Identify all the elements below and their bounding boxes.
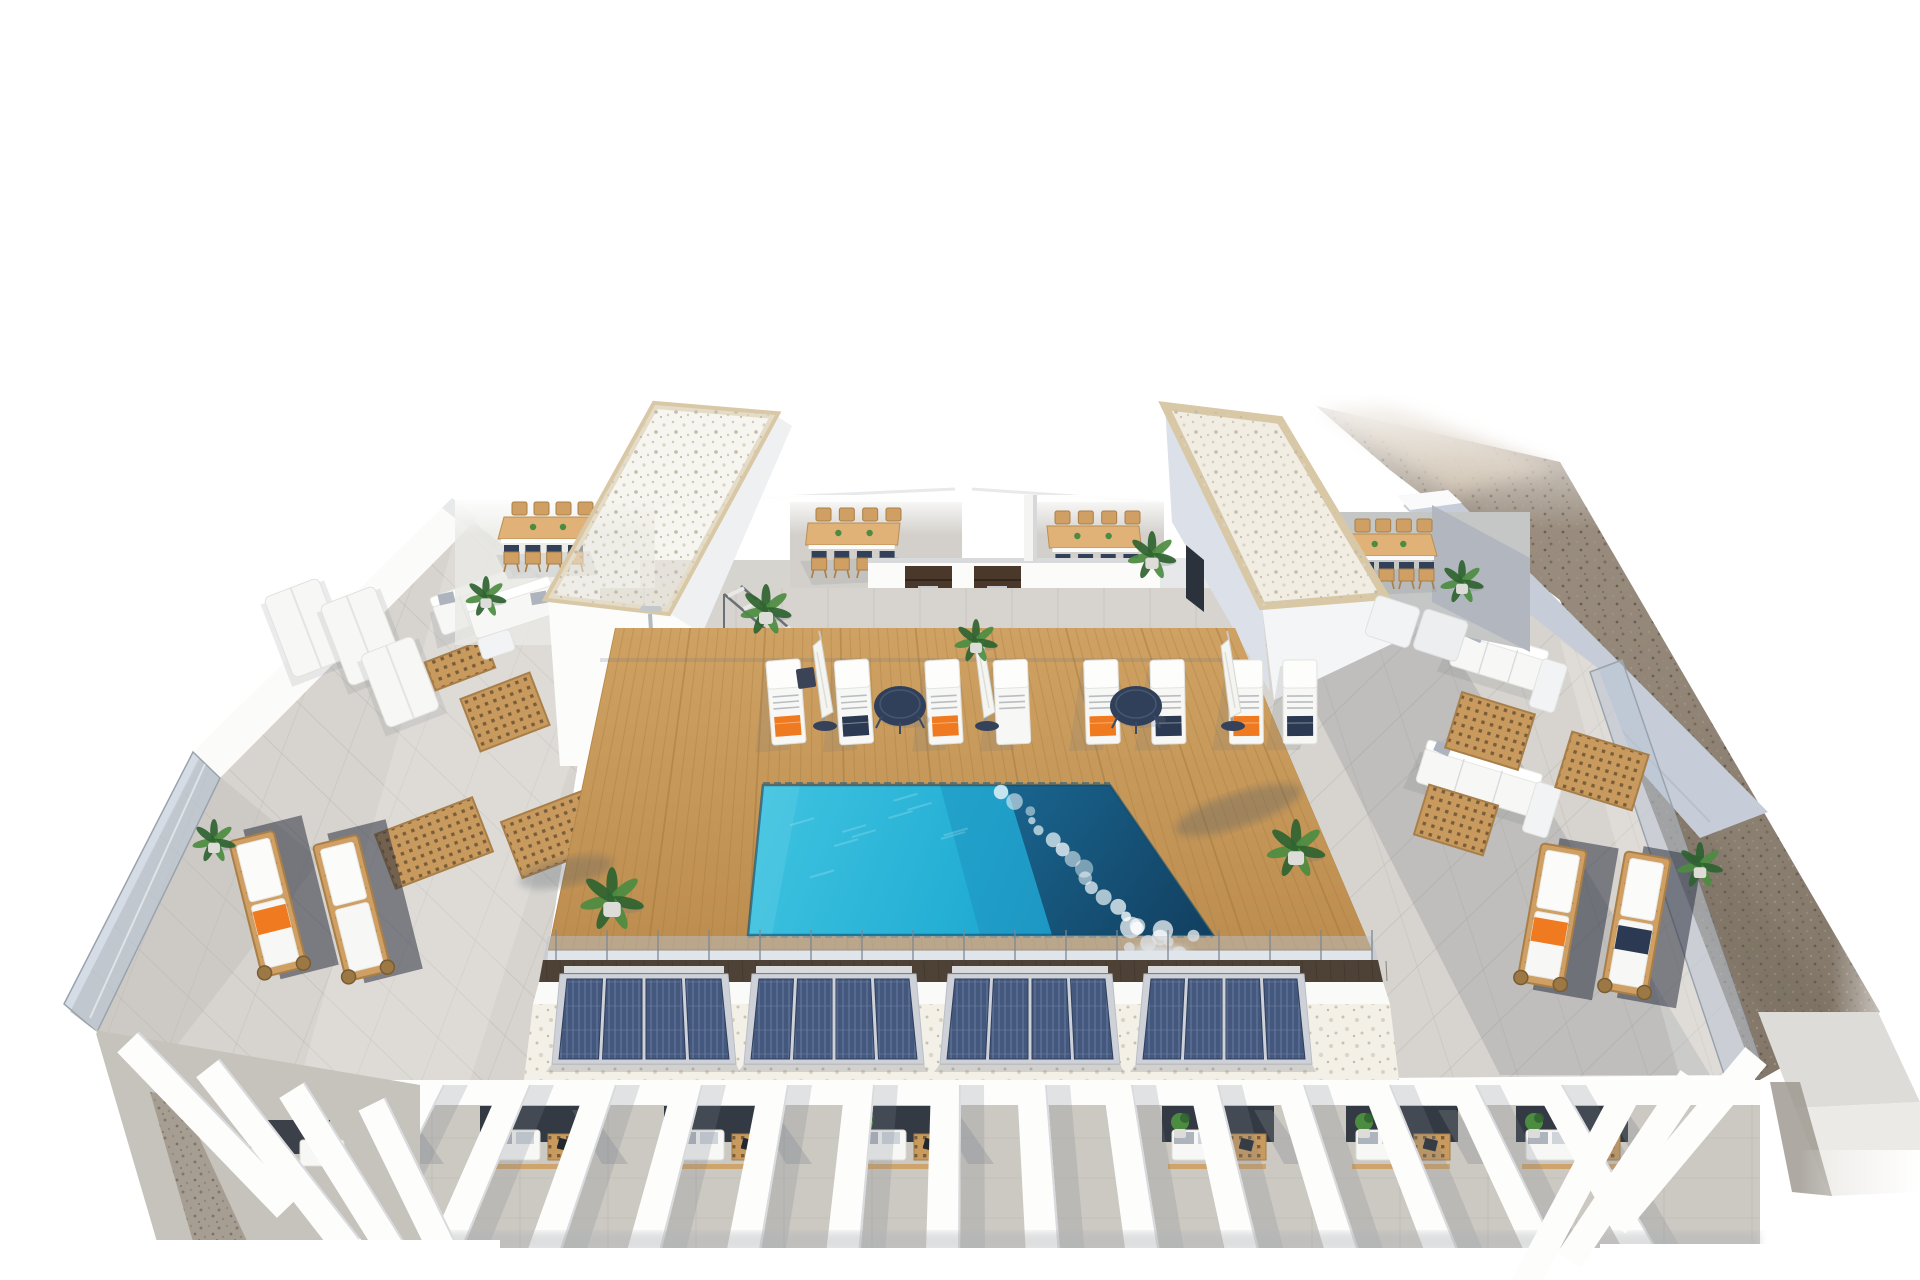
- module-grid: [603, 979, 643, 1059]
- array-shadow: [934, 1064, 1124, 1072]
- array-shadow: [1130, 1064, 1316, 1072]
- table-top: [1110, 686, 1162, 726]
- umbrella-base: [813, 721, 837, 731]
- plant-pot: [1145, 558, 1158, 569]
- foam: [1096, 889, 1112, 905]
- backrest: [834, 659, 870, 689]
- foam: [1025, 806, 1035, 816]
- chair-seat: [504, 545, 519, 552]
- table-top: [874, 686, 926, 726]
- chair-seat: [880, 551, 895, 558]
- module-grid: [794, 979, 833, 1059]
- backrest: [1150, 660, 1185, 689]
- chair-back: [556, 502, 571, 515]
- beam-edge: [959, 1085, 960, 1252]
- foam: [1085, 881, 1098, 894]
- umbrella-base: [975, 721, 999, 731]
- foam: [1006, 793, 1023, 810]
- solar-panel-array: [1130, 966, 1316, 1072]
- foam: [994, 785, 1008, 799]
- top-fade: [1280, 380, 1920, 530]
- module-grid: [646, 979, 686, 1059]
- corner-fade: [1800, 1150, 1920, 1280]
- module-grid: [990, 979, 1029, 1059]
- solar-panel-array: [934, 966, 1124, 1072]
- column-shade: [1033, 495, 1037, 561]
- table-top: [806, 523, 900, 545]
- chair-back: [1102, 511, 1117, 524]
- backrest: [993, 659, 1028, 689]
- umbrella-base: [1221, 721, 1245, 731]
- table-frame: [1052, 548, 1138, 552]
- table-plant: [835, 530, 841, 536]
- solar-panel-array: [546, 966, 740, 1072]
- array-support: [952, 966, 1108, 973]
- table-frame: [501, 539, 583, 543]
- plant-pot: [1174, 1129, 1186, 1138]
- chair-frame: [525, 552, 540, 564]
- plant-pot: [480, 598, 491, 608]
- plant-pot: [603, 902, 621, 917]
- module-grid: [1226, 979, 1264, 1059]
- chair-back: [863, 508, 878, 521]
- foam-splash: [1120, 917, 1142, 939]
- plant-pot: [1288, 851, 1304, 865]
- foam: [1033, 825, 1043, 835]
- plant-pot: [208, 843, 220, 853]
- table-plant: [1074, 533, 1080, 539]
- table-plant: [530, 524, 536, 530]
- chair-frame: [504, 552, 519, 564]
- chair-back: [1417, 519, 1432, 532]
- plant-pot: [1358, 1129, 1370, 1138]
- table-plant: [1105, 533, 1111, 539]
- chair-seat: [796, 667, 817, 689]
- chair-seat: [1379, 562, 1394, 569]
- plant-pot: [1528, 1129, 1540, 1138]
- chair-frame: [1399, 569, 1414, 581]
- backrest: [1084, 659, 1119, 688]
- white-column: [1024, 495, 1034, 561]
- towel: [932, 715, 959, 736]
- chair-back: [512, 502, 527, 515]
- potted-plant-leaf: [1180, 1113, 1190, 1123]
- chair-back: [1055, 511, 1070, 524]
- towel: [774, 715, 801, 737]
- towel: [1287, 716, 1313, 736]
- table-plant: [560, 524, 566, 530]
- rooftop-render-canvas: [0, 0, 1920, 1280]
- chair-back: [816, 508, 831, 521]
- array-support: [1148, 966, 1300, 973]
- chair-back: [886, 508, 901, 521]
- module-grid: [1185, 979, 1223, 1059]
- plant-pot: [1694, 867, 1707, 878]
- backrest: [925, 659, 960, 689]
- table-plant: [866, 530, 872, 536]
- chair-seat: [834, 551, 849, 558]
- plant-pot: [1456, 584, 1468, 594]
- module-grid: [836, 979, 875, 1059]
- chair-back: [1355, 519, 1370, 532]
- slat: [1155, 696, 1181, 697]
- table-top: [1047, 526, 1141, 548]
- chair-seat: [812, 551, 827, 558]
- chair-back: [1376, 519, 1391, 532]
- table-top: [498, 517, 592, 539]
- chair-back: [839, 508, 854, 521]
- chair-frame: [1379, 569, 1394, 581]
- plant-pot: [970, 643, 982, 653]
- array-support: [564, 966, 724, 973]
- corner-bottom-white: [0, 1240, 500, 1280]
- array-shadow: [738, 1064, 928, 1072]
- chair-frame: [547, 552, 562, 564]
- foam: [1028, 817, 1035, 824]
- chair-frame: [1419, 569, 1434, 581]
- chair-seat: [857, 551, 872, 558]
- table-plant: [1400, 541, 1406, 547]
- front-facade: [523, 930, 1400, 1088]
- potted-plant-leaf: [1534, 1113, 1544, 1123]
- chair-seat: [1419, 562, 1434, 569]
- table-frame: [809, 545, 895, 549]
- pergola-beam: [926, 1085, 961, 1252]
- chair-frame: [834, 558, 849, 570]
- chair-seat: [547, 545, 562, 552]
- chair-back: [534, 502, 549, 515]
- chair-back: [1396, 519, 1411, 532]
- backrest: [1283, 660, 1317, 688]
- array-shadow: [546, 1064, 740, 1072]
- chair-seat: [1399, 562, 1414, 569]
- glass-panel: [543, 936, 1378, 960]
- table-plant: [1372, 541, 1378, 547]
- shower-head: [640, 606, 662, 612]
- plant-pot: [759, 612, 773, 624]
- slat: [1089, 696, 1115, 697]
- solar-panel-array: [738, 966, 928, 1072]
- right-fade: [1830, 430, 1920, 1070]
- rooftop-render: [0, 0, 1920, 1280]
- deck-chair: [796, 667, 817, 689]
- array-support: [756, 966, 912, 973]
- chair-back: [1125, 511, 1140, 524]
- towel: [842, 715, 869, 737]
- chair-seat: [525, 545, 540, 552]
- module-grid: [1032, 979, 1071, 1059]
- chair-frame: [812, 558, 827, 570]
- chair-back: [1078, 511, 1093, 524]
- beam-shadow: [960, 1085, 985, 1252]
